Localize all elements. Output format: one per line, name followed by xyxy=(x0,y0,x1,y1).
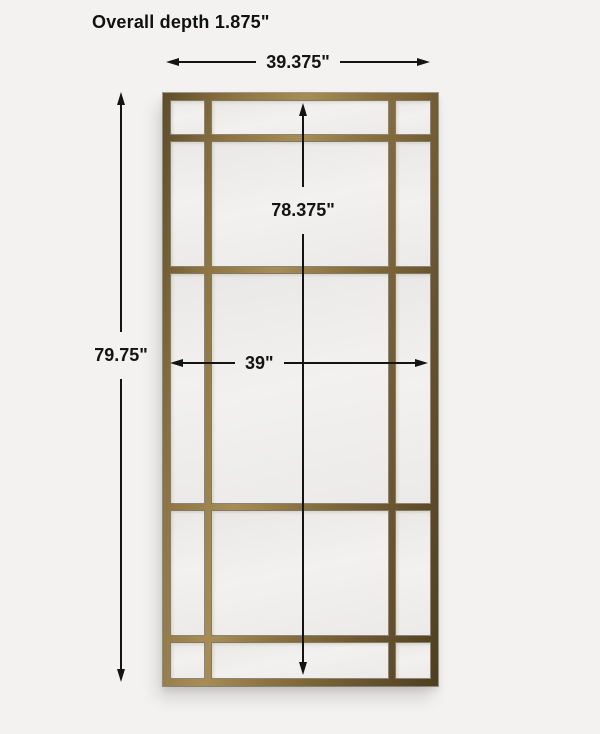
dimension-line xyxy=(302,234,304,662)
dimension-line xyxy=(302,116,304,187)
overall-width-value: 39.375" xyxy=(256,52,340,73)
arrow-up-icon xyxy=(117,92,125,105)
arrow-left-icon xyxy=(166,58,179,66)
dimension-line xyxy=(179,61,256,63)
dimension-line xyxy=(284,362,415,364)
mirror-pane xyxy=(170,642,205,679)
arrow-left-icon xyxy=(170,359,183,367)
dimension-line xyxy=(183,362,235,364)
mirror-height-dimension: 78.375" xyxy=(269,103,337,675)
mirror-pane xyxy=(395,642,431,679)
product-dimension-diagram: Overall depth 1.875" 39.375" 79.75" xyxy=(0,0,600,734)
overall-height-value: 79.75" xyxy=(94,332,148,379)
arrow-right-icon xyxy=(415,359,428,367)
dimension-line xyxy=(340,61,417,63)
overall-depth-label: Overall depth 1.875" xyxy=(92,12,270,33)
mirror-pane xyxy=(395,141,431,267)
mirror-pane xyxy=(395,100,431,135)
mirror-pane xyxy=(170,273,205,504)
mirror-height-value: 78.375" xyxy=(271,187,335,234)
mirror-width-value: 39" xyxy=(235,353,284,374)
overall-width-dimension: 39.375" xyxy=(166,51,430,73)
mirror-pane xyxy=(395,510,431,636)
dimension-line xyxy=(120,105,122,332)
mirror-pane xyxy=(170,100,205,135)
mirror-width-dimension: 39" xyxy=(170,352,428,374)
mirror-pane xyxy=(170,510,205,636)
arrow-right-icon xyxy=(417,58,430,66)
mirror-pane xyxy=(395,273,431,504)
arrow-up-icon xyxy=(299,103,307,116)
overall-height-dimension: 79.75" xyxy=(91,92,151,682)
mirror-pane xyxy=(170,141,205,267)
arrow-down-icon xyxy=(299,662,307,675)
arrow-down-icon xyxy=(117,669,125,682)
dimension-line xyxy=(120,379,122,669)
